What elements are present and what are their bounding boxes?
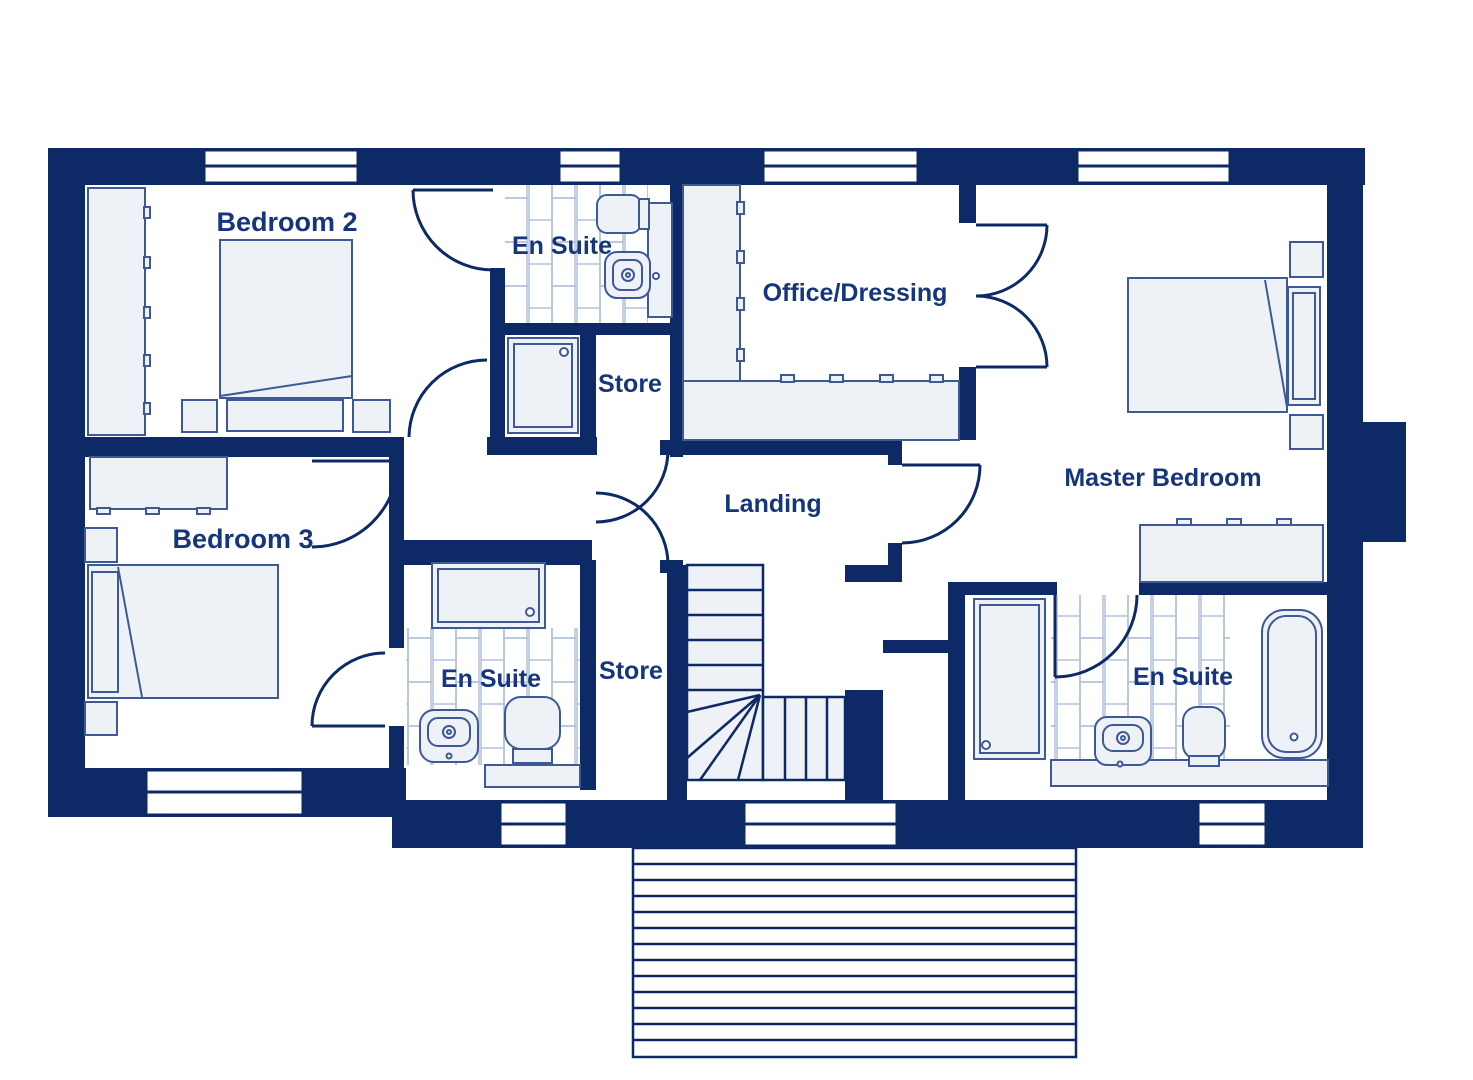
wall-ensuite-bl-top <box>389 540 592 565</box>
label-office-dressing: Office/Dressing <box>763 279 948 307</box>
wall-stairwell-void <box>883 640 948 653</box>
wall-office-landing <box>660 440 888 455</box>
basin-tap-dot <box>1121 736 1125 740</box>
bedroom3-dresser <box>90 457 227 514</box>
wall-bedroom3-ensuite-b <box>389 726 404 768</box>
bedside-table <box>1290 415 1323 449</box>
vanity-counter <box>648 203 672 317</box>
door-master-bedroom <box>902 465 980 543</box>
tap-dot <box>653 273 659 279</box>
vanity-counter <box>485 765 580 787</box>
window-master <box>1077 150 1230 183</box>
mattress <box>1128 278 1287 412</box>
shower-drain <box>982 741 990 749</box>
label-ensuite-top: En Suite <box>512 232 612 260</box>
label-landing: Landing <box>724 490 821 518</box>
tap-dot <box>1118 762 1123 767</box>
shower-top <box>508 338 578 433</box>
toilet-bowl <box>505 697 560 749</box>
wall-office-stub-bottom <box>959 367 976 440</box>
wall-store-bottom-left <box>580 560 596 790</box>
wall-chimney-bump <box>1363 422 1406 542</box>
toilet-base <box>1189 756 1219 766</box>
toilet-bowl <box>1183 707 1225 759</box>
basin-tap-dot <box>626 273 630 277</box>
shower-tray <box>974 599 1045 759</box>
bedroom2-wardrobe <box>88 188 150 435</box>
wall-bedroom2-ensuite <box>490 268 505 440</box>
toilet-cistern <box>639 199 649 229</box>
decking <box>633 848 1076 1057</box>
label-store-bottom: Store <box>599 657 663 685</box>
bedroom2-bed <box>182 240 390 432</box>
mattress <box>220 240 352 398</box>
master-bed <box>1128 242 1323 449</box>
wall-office-stub-top <box>959 185 976 223</box>
label-master-bedroom: Master Bedroom <box>1064 464 1261 492</box>
master-dresser <box>1140 519 1323 582</box>
bedside-table <box>85 702 117 735</box>
window-ensuite-top <box>559 150 621 183</box>
door-store-top <box>596 450 668 522</box>
wall-ensuite-top-bottom <box>505 323 683 335</box>
door-bedroom2 <box>409 360 487 437</box>
window-office <box>763 150 918 183</box>
toilet-base <box>513 749 552 763</box>
label-ensuite-br: En Suite <box>1133 663 1233 691</box>
bedside-table <box>85 528 117 562</box>
basin-tap-dot <box>447 730 451 734</box>
wall-ensuite-br-left <box>948 582 965 800</box>
tap-dot <box>447 754 452 759</box>
door-bedroom3-ensuite <box>312 653 385 726</box>
window-ensuite-bl <box>500 802 567 846</box>
bedside-table <box>1290 242 1323 277</box>
floor-plan: Bedroom 2 En Suite Office/Dressing Store… <box>0 0 1473 1080</box>
bedside-table <box>353 400 390 432</box>
window-stairs <box>744 802 897 846</box>
shower-drain <box>526 608 534 616</box>
wall-exterior-right <box>1327 185 1363 848</box>
label-bedroom2: Bedroom 2 <box>216 207 357 237</box>
wall-store-top-left <box>580 335 596 440</box>
staircase <box>687 565 845 780</box>
door-office-double <box>976 225 1047 367</box>
wall-master-ensuite-b <box>1139 582 1327 595</box>
wall-master-ensuite-a <box>948 582 1057 595</box>
window-ensuite-br <box>1198 802 1266 846</box>
pillow <box>92 572 118 692</box>
bedside-table <box>182 400 217 432</box>
label-ensuite-bl: En Suite <box>441 665 541 693</box>
wall-stair-left <box>667 565 687 800</box>
window-bedroom2 <box>204 150 358 183</box>
wall-bedroom2-bedroom3 <box>85 437 404 457</box>
stair-lower-flight <box>763 697 845 780</box>
wall-stair-right <box>845 690 883 800</box>
shower-tray <box>432 563 545 628</box>
headboard <box>227 400 343 431</box>
bath-drain <box>1291 734 1298 741</box>
floor-plan-svg: Bedroom 2 En Suite Office/Dressing Store… <box>0 0 1473 1080</box>
wall-master-door-stub-top <box>888 440 902 465</box>
door-store-bottom <box>596 493 668 565</box>
bedroom3-bed <box>85 528 278 735</box>
label-bedroom3: Bedroom 3 <box>172 524 313 554</box>
wall-exterior-left <box>48 148 85 817</box>
window-bedroom3 <box>146 770 303 815</box>
toilet-bowl <box>597 195 641 233</box>
wall-master-door-stub-bottom <box>888 543 902 582</box>
shower-drain <box>560 348 568 356</box>
label-store-top: Store <box>598 370 662 398</box>
door-bedroom3 <box>312 461 398 547</box>
door-bedroom2-ensuite <box>413 190 493 270</box>
office-wardrobe <box>683 185 959 440</box>
